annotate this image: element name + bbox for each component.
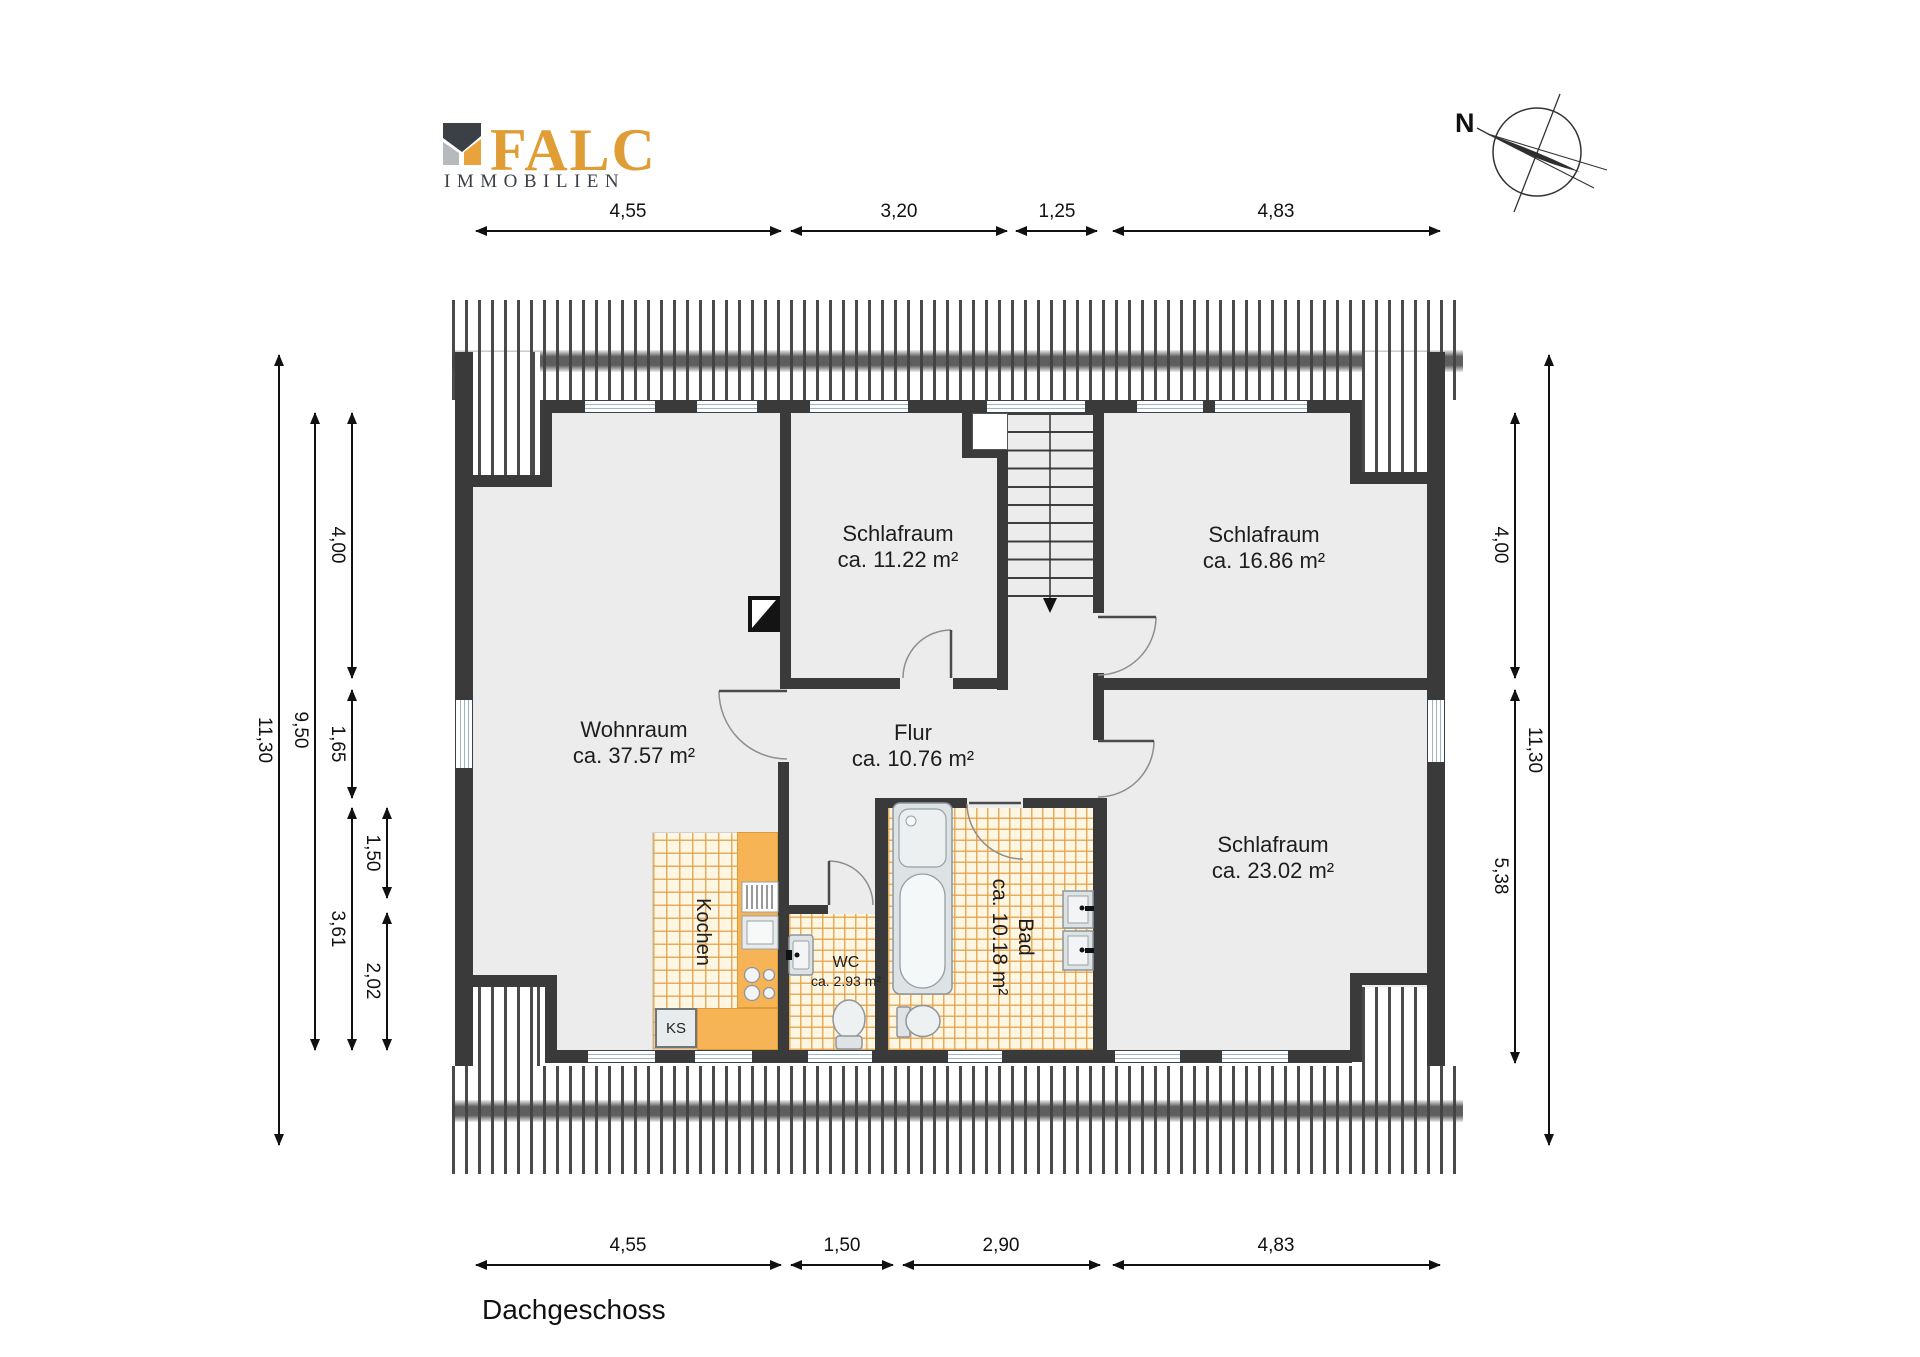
room-name: Bad (1012, 879, 1038, 996)
dim-line-left-4_00 (351, 413, 353, 678)
dim-label-left-1_65: 1,65 (326, 726, 348, 763)
room-name: Wohnraum (573, 717, 695, 743)
fixtures-overlay (0, 0, 1920, 1357)
bad-toilet (897, 1006, 940, 1038)
dim-label-bottom-1: 4,55 (610, 1235, 647, 1257)
room-area: ca. 23.02 m² (1212, 858, 1334, 884)
dim-line-top-3 (1016, 230, 1097, 232)
wc-sink (786, 935, 813, 975)
dim-line-top-4 (1113, 230, 1440, 232)
dim-label-top-2: 3,20 (881, 201, 918, 223)
door-arc-schlafraum1 (903, 630, 951, 678)
dim-line-right-4_00 (1514, 413, 1516, 678)
dim-line-left-2_02 (386, 913, 388, 1050)
room-label-schlafraum-3: Schlafraum ca. 23.02 m² (1212, 832, 1334, 884)
dim-label-left-3_61: 3,61 (326, 911, 348, 948)
room-area: ca. 10.18 m² (986, 879, 1012, 996)
dim-line-bottom-2 (791, 1264, 893, 1266)
dim-label-bottom-4: 4,83 (1258, 1235, 1295, 1257)
dim-label-left-inner: 9,50 (289, 712, 311, 749)
dim-label-right-4_00: 4,00 (1489, 527, 1511, 564)
room-name: WC (811, 954, 881, 972)
door-arc-wohnraum (719, 691, 787, 759)
room-area: ca. 16.86 m² (1203, 548, 1325, 574)
dim-label-top-1: 4,55 (610, 201, 647, 223)
stairs-direction-arrow (1043, 415, 1057, 613)
room-name: Schlafraum (838, 521, 959, 547)
chimney (748, 596, 780, 632)
kitchen-appliances (742, 882, 778, 1001)
dim-line-right-5_38 (1514, 690, 1516, 1063)
door-arc-bad (967, 804, 1023, 859)
bad-sink-2 (1063, 931, 1094, 970)
dim-label-top-3: 1,25 (1039, 201, 1076, 223)
room-label-schlafraum-1: Schlafraum ca. 11.22 m² (838, 521, 959, 573)
room-name: Schlafraum (1212, 832, 1334, 858)
room-label-wohnraum: Wohnraum ca. 37.57 m² (573, 717, 695, 769)
shower-tray (899, 809, 946, 867)
dim-label-left-1_50: 1,50 (361, 835, 383, 872)
dim-label-left-overall: 11,30 (253, 717, 275, 763)
dim-line-top-2 (791, 230, 1007, 232)
room-label-bad: Bad ca. 10.18 m² (986, 879, 1038, 996)
room-name: Schlafraum (1203, 522, 1325, 548)
dim-line-left-inner (314, 413, 316, 1050)
stove-burners (745, 968, 775, 1001)
room-label-flur: Flur ca. 10.76 m² (852, 720, 974, 772)
room-label-kochen: Kochen (690, 898, 716, 966)
room-name: Flur (852, 720, 974, 746)
room-area: ca. 11.22 m² (838, 547, 959, 573)
door-arc-schlafraum3 (1098, 741, 1154, 797)
dim-label-right-5_38: 5,38 (1489, 858, 1511, 895)
room-area: ca. 2.93 m² (811, 972, 881, 990)
room-label-schlafraum-2: Schlafraum ca. 16.86 m² (1203, 522, 1325, 574)
shower-drain (906, 816, 916, 826)
room-label-wc: WC ca. 2.93 m² (811, 954, 881, 990)
dim-line-left-1_50 (386, 808, 388, 898)
room-area: ca. 37.57 m² (573, 743, 695, 769)
dim-line-left-1_65 (351, 690, 353, 798)
dim-label-left-4_00: 4,00 (326, 527, 348, 564)
dim-line-left-3_61 (351, 808, 353, 1050)
dim-line-left-overall (278, 355, 280, 1145)
dim-line-top-1 (476, 230, 781, 232)
dim-label-bottom-2: 1,50 (824, 1235, 861, 1257)
door-arc-schlafraum2 (1098, 617, 1156, 675)
dim-line-bottom-3 (903, 1264, 1100, 1266)
dim-label-top-4: 4,83 (1258, 201, 1295, 223)
bad-sink-1 (1063, 891, 1094, 928)
dim-label-left-2_02: 2,02 (361, 963, 383, 1000)
dim-label-right-overall: 11,30 (1523, 727, 1545, 773)
floorplan-page: FALC IMMOBILIEN N (0, 0, 1920, 1357)
room-name: Kochen (690, 898, 716, 966)
dim-line-bottom-1 (476, 1264, 781, 1266)
dim-line-right-overall (1548, 355, 1550, 1145)
room-area: ca. 10.76 m² (852, 746, 974, 772)
dim-label-bottom-3: 2,90 (983, 1235, 1020, 1257)
door-arc-wc (829, 861, 873, 905)
floor-title: Dachgeschoss (482, 1294, 666, 1326)
bathtub (893, 803, 952, 994)
dim-line-bottom-4 (1113, 1264, 1440, 1266)
wc-toilet (833, 1000, 865, 1049)
